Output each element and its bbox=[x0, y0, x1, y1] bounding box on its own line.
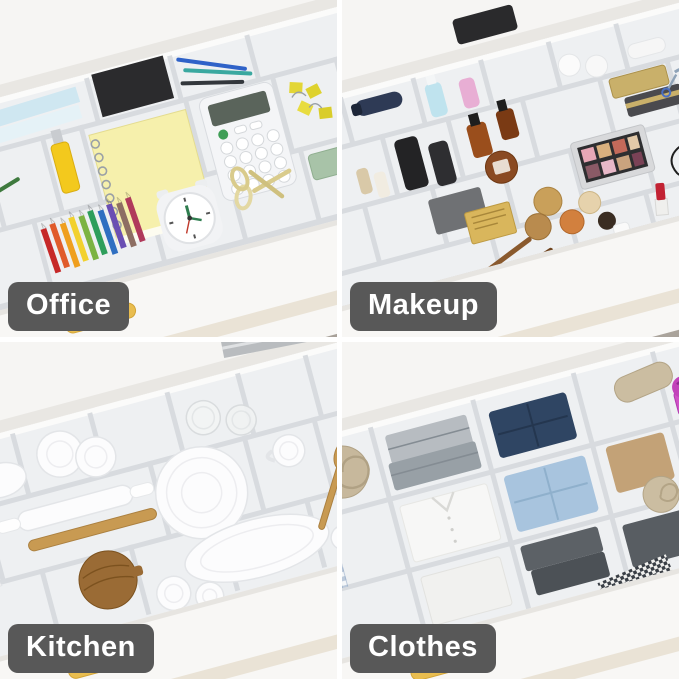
panel-clothes: Clothes bbox=[342, 342, 679, 679]
label-clothes: Clothes bbox=[350, 624, 496, 673]
label-office: Office bbox=[8, 282, 129, 331]
panel-kitchen: Kitchen bbox=[0, 342, 337, 679]
label-makeup: Makeup bbox=[350, 282, 497, 331]
panel-makeup: Makeup bbox=[342, 0, 679, 337]
panel-office: Office bbox=[0, 0, 337, 337]
product-collage: Office bbox=[0, 0, 679, 679]
label-kitchen: Kitchen bbox=[8, 624, 154, 673]
